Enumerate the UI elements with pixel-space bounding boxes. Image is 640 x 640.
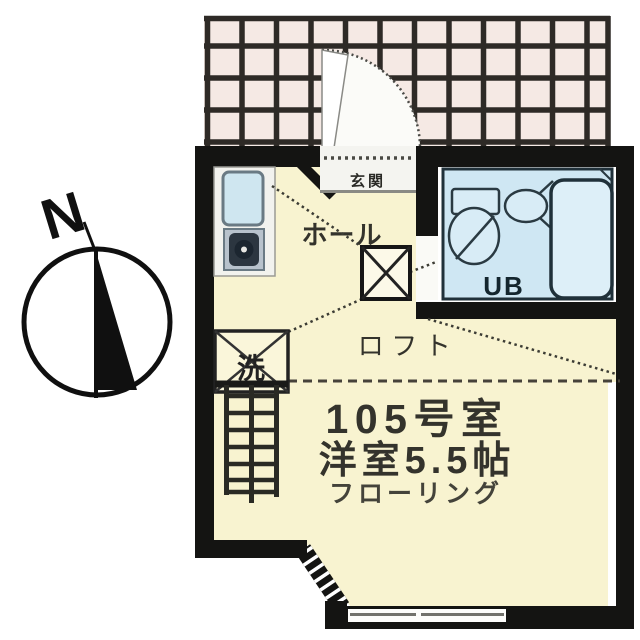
svg-text:UB: UB bbox=[483, 271, 525, 301]
svg-text:玄関: 玄関 bbox=[350, 172, 386, 190]
svg-text:洋室5.5帖: 洋室5.5帖 bbox=[319, 439, 516, 482]
svg-text:洗: 洗 bbox=[237, 353, 265, 384]
svg-text:105号室: 105号室 bbox=[326, 396, 509, 442]
svg-text:ロフト: ロフト bbox=[358, 331, 459, 361]
svg-text:N: N bbox=[34, 179, 92, 252]
svg-text:フローリング: フローリング bbox=[329, 480, 503, 508]
